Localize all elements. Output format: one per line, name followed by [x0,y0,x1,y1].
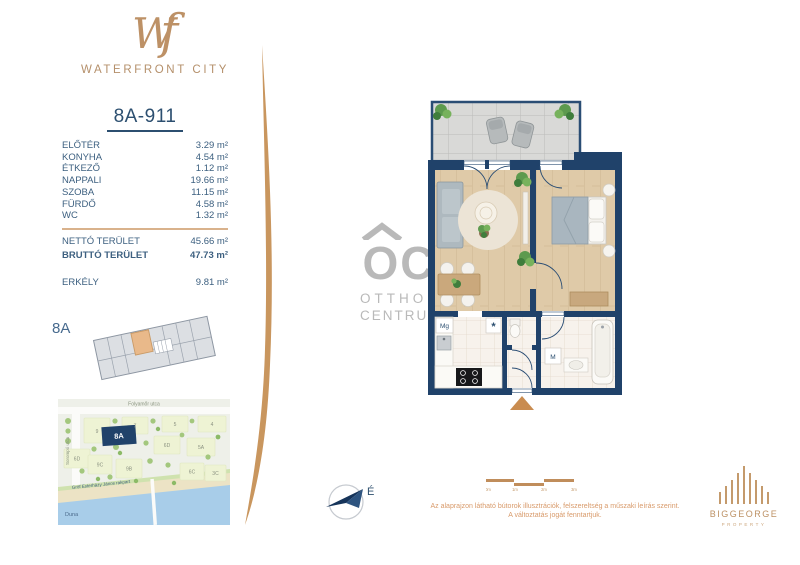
map-block-label: 4 [211,422,214,428]
scale-tick: 2m [541,487,547,492]
map-highlight-building: 8A [101,425,136,446]
total-area: 47.73 m² [190,249,228,264]
key-plan-building-label: 8A [52,320,70,337]
table-row: FÜRDŐ4.58 m² [62,199,228,211]
room-label: SZOBA [62,187,94,199]
biggeorge-crown-icon [720,466,768,504]
table-row: KONYHA4.54 m² [62,152,228,164]
key-plan-highlighted-unit [131,330,153,355]
gross-area-row: BRUTTÓ TERÜLET47.73 m² [62,249,228,264]
room-area: 1.12 m² [196,163,228,175]
room-label: ÉTKEZŐ [62,163,100,175]
brand-name: WATERFRONT CITY [55,64,255,76]
map-street-left-label: Sorompó utca [65,436,70,465]
room-area: 4.58 m² [196,199,228,211]
scale-tick: 1m [512,487,518,492]
scale-tick: 3m [571,487,577,492]
compass-north-label: É [367,485,374,498]
biggeorge-logo: BIGGEORGE PROPERTY [698,460,790,532]
compass: É [320,478,380,526]
nightstand [603,245,615,257]
room-area: 11.15 m² [191,187,228,199]
developer-division: PROPERTY [722,522,767,527]
brand-block: Wf WATERFRONT CITY [55,6,255,76]
table-row: SZOBA11.15 m² [62,187,228,199]
cooktop [456,368,482,386]
map-block-label: 6D [164,443,171,449]
room-area: 3.29 m² [196,140,228,152]
map-street-top-label: Folyamőr utca [128,402,160,408]
room-label: KONYHA [62,152,102,164]
divider-swoosh [238,45,282,527]
nightstand [603,184,615,196]
map-block-label: 9C [97,463,104,469]
map-block-label: 7 [134,424,137,430]
map-block-label: 5 [174,422,177,428]
map-block-label: 9B [126,467,133,473]
unit-title-wrap: 8A-911 [62,106,228,132]
scale-bar: 0m 1m 2m 3m [486,477,578,493]
balcony-row: ERKÉLY9.81 m² [62,277,228,289]
room-area: 19.66 m² [191,175,229,187]
watermark-roof-icon [361,222,403,240]
map-block-label: 9 [96,429,99,435]
disclaimer-line2: A változtatás jogát fenntartjuk. [400,511,710,520]
total-area: 45.66 m² [191,235,229,250]
table-row: ÉTKEZŐ1.12 m² [62,163,228,175]
net-area-row: NETTÓ TERÜLET45.66 m² [62,235,228,250]
waterfront-logo-icon: Wf [55,6,255,62]
fridge-label: * [491,321,496,333]
room-label: WC [62,210,78,222]
site-map: 8A 9 7 5 4 6D 5A 6D 9C 9B 6C 3C Folyamőr… [58,399,230,525]
entrance-arrow-icon [510,396,534,410]
developer-name: BIGGEORGE [710,509,779,519]
coffee-table [475,202,497,224]
floor-plan: Mg * M [424,96,624,418]
map-river-label: Duna [65,512,79,518]
bed [552,197,606,244]
room-label: FÜRDŐ [62,199,96,211]
room-area: 4.54 m² [196,152,228,164]
table-row: NAPPALI19.66 m² [62,175,228,187]
terrace [432,102,580,160]
bath-m-label: M [550,354,555,361]
total-label: BRUTTÓ TERÜLET [62,249,148,264]
map-block-label: 5A [198,445,205,451]
table-divider [62,228,228,230]
total-label: NETTÓ TERÜLET [62,235,140,250]
balcony-area: 9.81 m² [196,277,228,289]
room-label: ELŐTÉR [62,140,100,152]
disclaimer-line1: Az alaprajzon látható bútorok illusztrác… [400,502,710,511]
map-highlight-label: 8A [114,431,125,441]
map-block-label: 3C [212,471,219,477]
area-table: ELŐTÉR3.29 m² KONYHA4.54 m² ÉTKEZŐ1.12 m… [62,140,228,289]
map-block-label: 6D [74,457,81,463]
map-block-label: 6C [189,470,196,476]
unit-title: 8A-911 [107,106,184,132]
map-road-top [58,407,230,414]
table-row: ELŐTÉR3.29 m² [62,140,228,152]
room-area: 1.32 m² [196,210,228,222]
balcony-label: ERKÉLY [62,277,99,289]
wc [510,319,520,338]
table-row: WC1.32 m² [62,210,228,222]
scale-tick: 0m [486,487,491,492]
tv-console [523,192,528,244]
washer-label: Mg [440,323,449,330]
key-plan [84,306,224,386]
room-label: NAPPALI [62,175,101,187]
disclaimer: Az alaprajzon látható bútorok illusztrác… [400,502,710,520]
logo-letter-f: f [160,4,178,60]
desk [570,292,608,306]
